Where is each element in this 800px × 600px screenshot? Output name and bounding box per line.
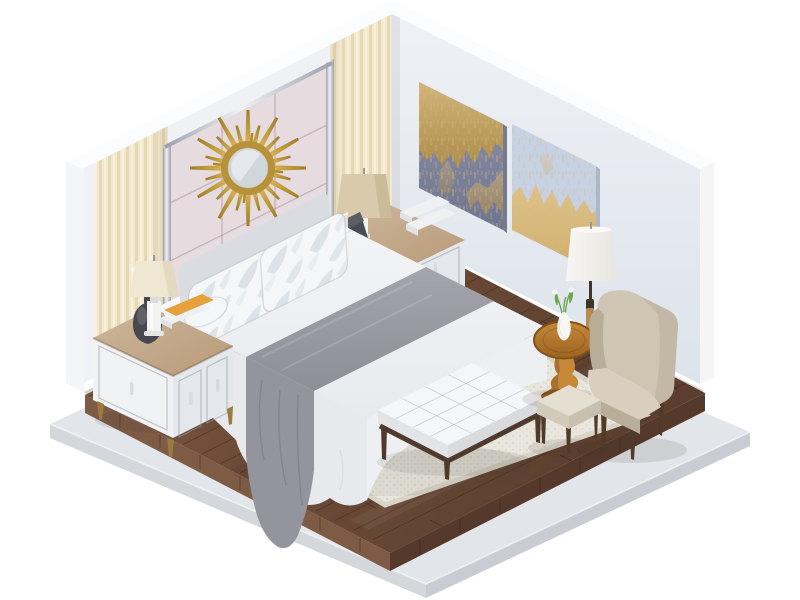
isometric-bedroom-scene [0, 0, 800, 600]
floor-lamp-shade [566, 229, 617, 281]
door-handle [130, 382, 134, 395]
bedroom-render [0, 0, 800, 600]
door-handle [216, 379, 220, 392]
left-wall-end-edge [66, 161, 84, 392]
door-handle [189, 392, 193, 405]
corner-shadow [392, 14, 400, 233]
painting-edge [503, 124, 507, 233]
lamp-body [147, 301, 161, 333]
right-wall-end-edge [700, 162, 714, 384]
